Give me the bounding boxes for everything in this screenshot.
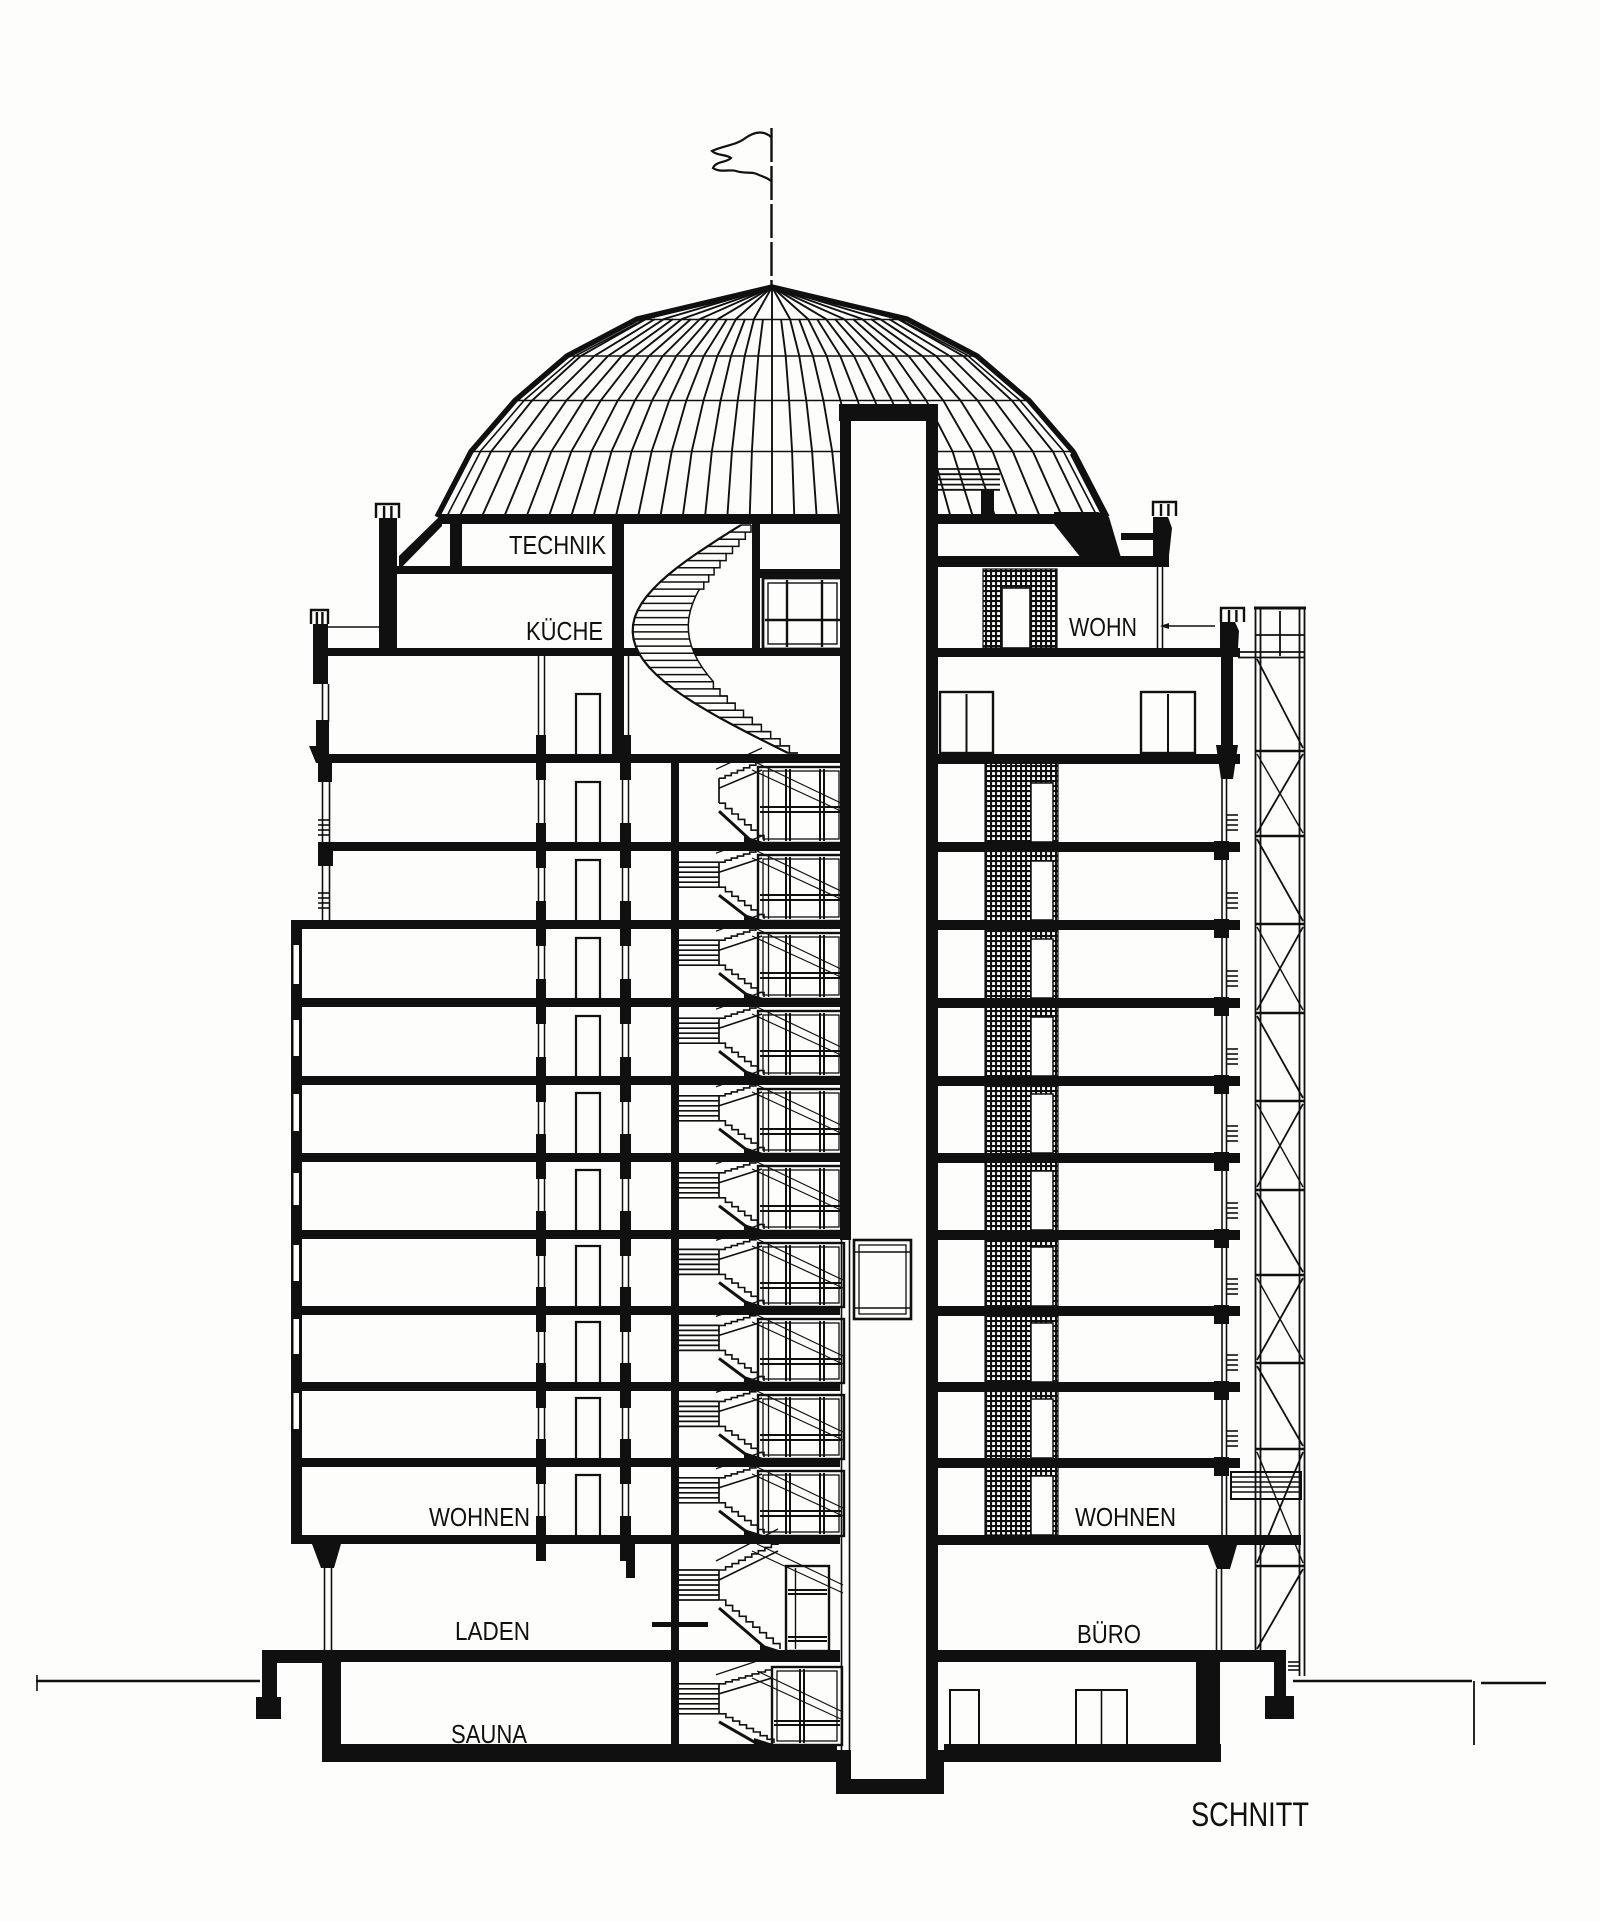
svg-text:KÜCHE: KÜCHE [526,618,603,646]
svg-text:TECHNIK: TECHNIK [509,532,606,560]
svg-text:WOHNEN: WOHNEN [1075,1504,1176,1532]
svg-text:LADEN: LADEN [455,1618,530,1646]
svg-text:WOHN: WOHN [1069,614,1137,642]
svg-text:SAUNA: SAUNA [451,1721,527,1749]
svg-text:WOHNEN: WOHNEN [429,1504,530,1532]
svg-text:BÜRO: BÜRO [1077,1621,1141,1649]
svg-text:SCHNITT: SCHNITT [1191,1796,1309,1834]
